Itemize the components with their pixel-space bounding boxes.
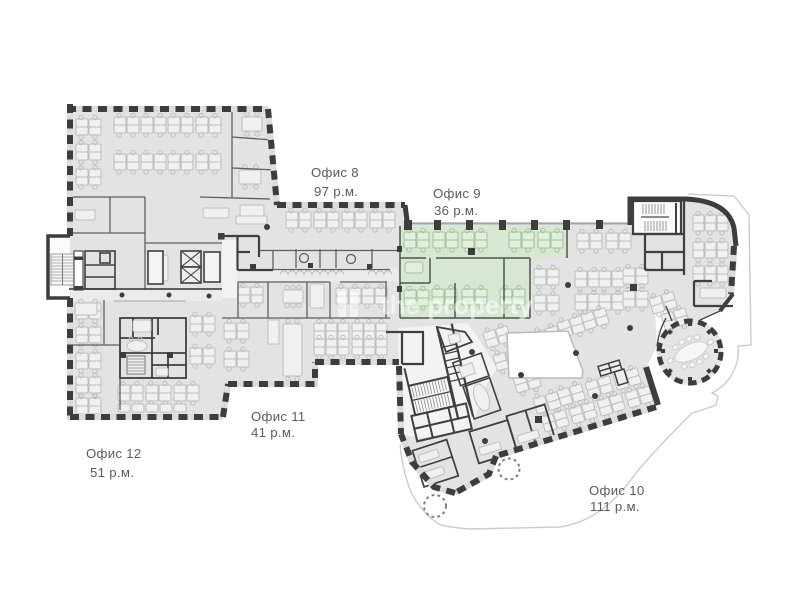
svg-text:Офис 9: Офис 9 [433,186,481,201]
svg-text:Офис 11: Офис 11 [251,409,306,424]
svg-text:the property: the property [381,290,533,320]
svg-text:111 р.м.: 111 р.м. [590,499,640,514]
svg-text:Офис 10: Офис 10 [589,483,645,498]
svg-text:51 р.м.: 51 р.м. [90,465,134,480]
svg-text:41 р.м.: 41 р.м. [251,425,295,440]
svg-text:36 р.м.: 36 р.м. [434,203,478,218]
svg-text:Офис 8: Офис 8 [311,165,359,180]
svg-text:97 р.м.: 97 р.м. [314,184,358,199]
svg-text:Офис 12: Офис 12 [86,446,142,461]
